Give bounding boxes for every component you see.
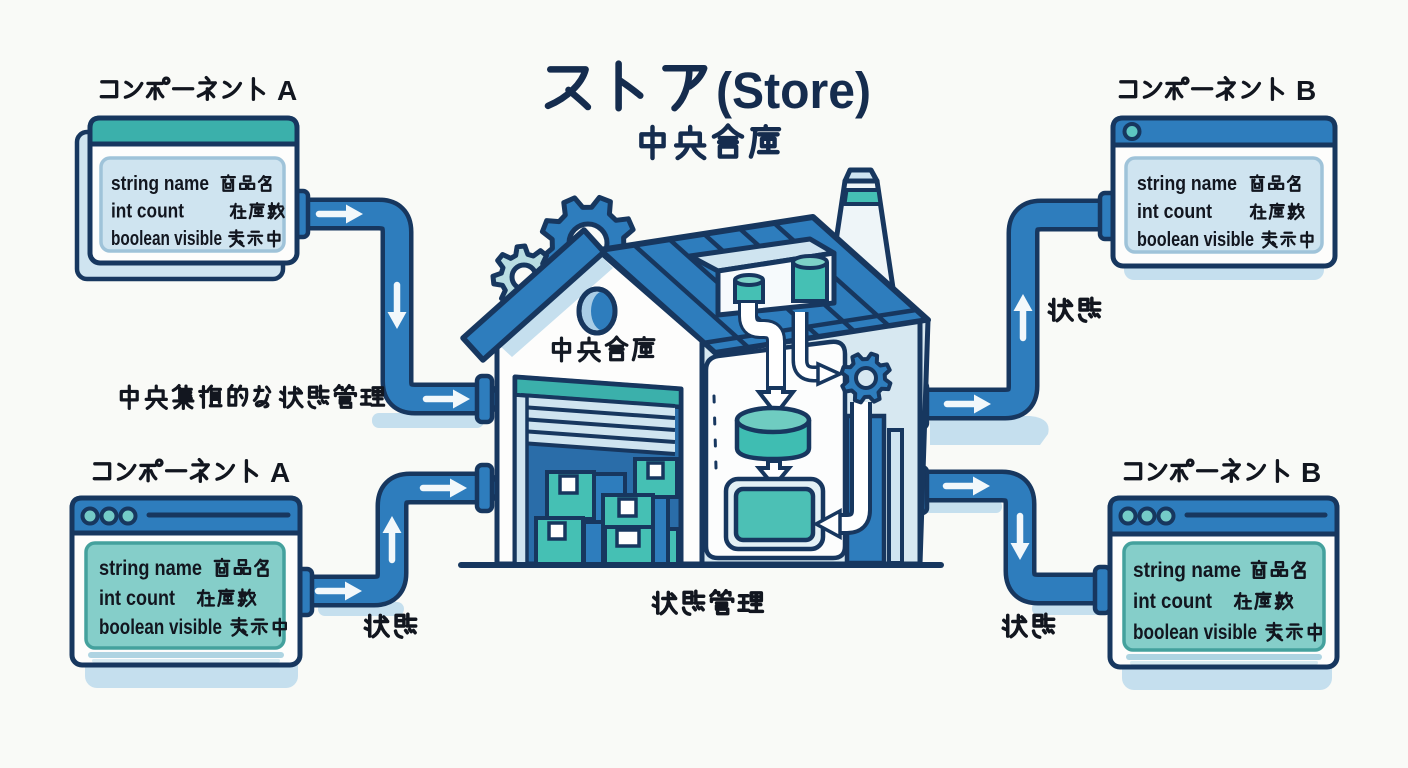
- svg-text:boolean visible: boolean visible: [111, 227, 222, 250]
- svg-text:boolean visible: boolean visible: [99, 616, 222, 639]
- svg-text:B: B: [1301, 457, 1321, 488]
- svg-text:int count: int count: [111, 200, 184, 223]
- svg-text:A: A: [270, 457, 290, 488]
- svg-text:string name: string name: [99, 557, 202, 580]
- svg-text:int count: int count: [1133, 590, 1212, 613]
- svg-text:string name: string name: [111, 172, 209, 195]
- svg-text:A: A: [277, 75, 297, 106]
- svg-text:int count: int count: [1137, 200, 1212, 223]
- svg-text:string name: string name: [1137, 172, 1237, 195]
- svg-text:string name: string name: [1133, 559, 1241, 582]
- svg-text:boolean visible: boolean visible: [1133, 621, 1257, 644]
- svg-text:(Store): (Store): [716, 62, 871, 119]
- svg-text:B: B: [1296, 75, 1316, 106]
- svg-text:boolean visible: boolean visible: [1137, 228, 1254, 251]
- svg-text:int count: int count: [99, 587, 175, 610]
